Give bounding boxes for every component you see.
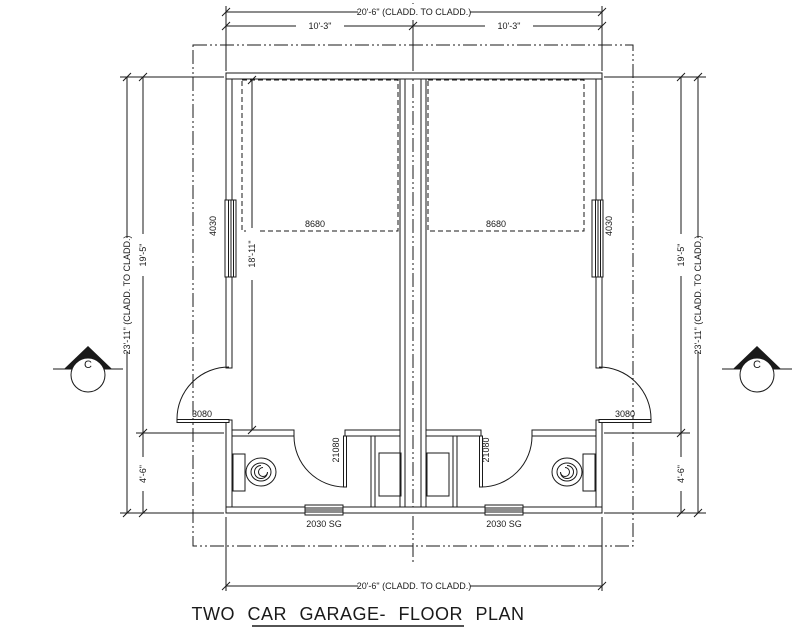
floor-plan-drawing: C C (0, 0, 799, 633)
section-marker-left: C (53, 346, 123, 392)
garage-door-panel-right (428, 80, 584, 231)
left-wall-mid (226, 277, 232, 368)
side-window-right (592, 200, 603, 277)
dim-overall-width-bottom: 20'-6" (CLADD. TO CLADD.) (357, 581, 472, 591)
floor-plan-page: C C (0, 0, 799, 633)
store-wall-left-b (345, 430, 400, 436)
dim-store-depth-left: 4'-6" (138, 465, 148, 483)
rear-window-left (305, 505, 343, 515)
right-wall-upper (596, 79, 602, 200)
party-wall-left (400, 79, 405, 507)
rear-wall-left (226, 507, 305, 513)
rear-window-right (485, 505, 523, 515)
dim-store-depth-right: 4'-6" (676, 465, 686, 483)
section-letter: C (84, 359, 92, 371)
section-letter: C (753, 359, 761, 371)
garage-door-panel-left (242, 80, 398, 231)
store-wall-right-a (426, 430, 481, 436)
side-window-left (225, 200, 236, 277)
left-wall-lower (226, 420, 232, 507)
fixtures (233, 453, 595, 496)
rear-wall-center (343, 507, 485, 513)
dim-bay-width-right: 10'-3" (498, 21, 521, 31)
dim-overall-depth-right: 23'-11" (CLADD. TO CLADD.) (693, 236, 703, 355)
dim-overall-depth-left: 23'-11" (CLADD. TO CLADD.) (122, 236, 132, 355)
side-windows (225, 200, 603, 277)
door-leaf (599, 420, 651, 423)
label-interior-door-right: 21080 (481, 437, 491, 462)
dim-garage-depth-right: 19'-5" (676, 244, 686, 267)
cylinder-right (427, 453, 449, 496)
toilet-left (233, 454, 276, 491)
exterior-doors (177, 367, 651, 423)
door-leaf (344, 436, 347, 487)
store-wall-right-b (532, 430, 596, 436)
drawing-title: TWO CAR GARAGE- FLOOR PLAN (191, 604, 524, 626)
door-leaf (177, 420, 229, 423)
label-garage-door-left: 8680 (305, 219, 325, 229)
rear-wall-right (523, 507, 602, 513)
walls (226, 73, 602, 513)
title-text: TWO CAR GARAGE- FLOOR PLAN (191, 604, 524, 624)
partition-left (371, 436, 375, 507)
dim-bay-width-left: 10'-3" (309, 21, 332, 31)
label-side-window-right: 4030 (604, 216, 614, 236)
right-wall-mid (596, 277, 602, 368)
label-side-window-left: 4030 (208, 216, 218, 236)
store-wall-left-a (232, 430, 294, 436)
label-side-door-left: 3080 (192, 409, 212, 419)
partition-right (453, 436, 457, 507)
label-side-door-right: 3080 (615, 409, 635, 419)
dim-overall-width-top: 20'-6" (CLADD. TO CLADD.) (357, 7, 472, 17)
dim-garage-depth-left: 19'-5" (138, 244, 148, 267)
right-wall-lower (596, 420, 602, 507)
label-rear-window-left: 2030 SG (306, 519, 342, 529)
front-wall (226, 73, 602, 79)
party-wall-right (421, 79, 426, 507)
left-wall-upper (226, 79, 232, 200)
label-rear-window-right: 2030 SG (486, 519, 522, 529)
toilet-right (552, 454, 595, 491)
cylinder-left (379, 453, 401, 496)
section-marker-right: C (722, 346, 792, 392)
dim-interior-depth: 18'-11" (247, 240, 257, 267)
label-garage-door-right: 8680 (486, 219, 506, 229)
label-interior-door-left: 21080 (331, 437, 341, 462)
